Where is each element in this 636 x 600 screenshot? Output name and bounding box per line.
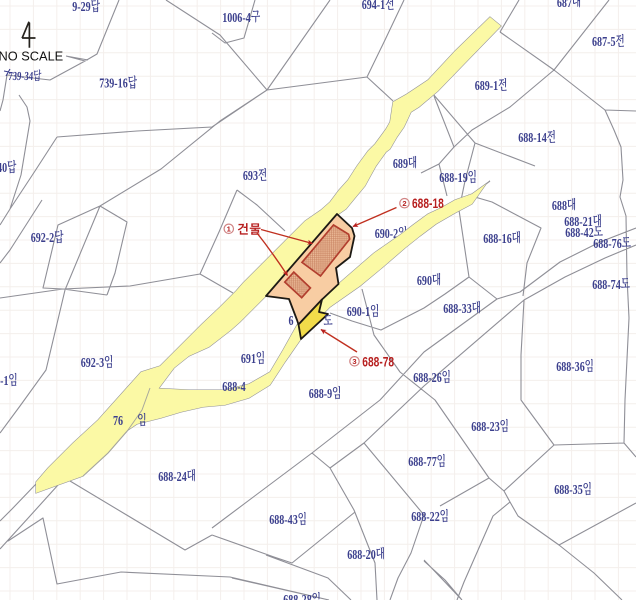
svg-text:688-9: 688-9 [309,385,332,401]
svg-text:689-1: 689-1 [475,77,498,93]
svg-text:692-2: 692-2 [31,229,54,245]
svg-text:690: 690 [417,272,432,288]
svg-text:9-29: 9-29 [72,0,90,14]
svg-text:2: 2 [402,199,406,208]
svg-text:688-4: 688-4 [222,378,245,394]
svg-text:740: 740 [0,159,7,175]
svg-text:688-19: 688-19 [439,169,468,185]
svg-text:688-74: 688-74 [592,276,621,292]
svg-text:688-22: 688-22 [411,508,440,524]
svg-text:688-42: 688-42 [565,224,594,240]
svg-text:688-23: 688-23 [471,418,500,434]
svg-text:693: 693 [243,167,258,183]
svg-text:688-20: 688-20 [347,546,376,562]
svg-text:688-16: 688-16 [483,230,512,246]
svg-text:694-1: 694-1 [362,0,385,12]
svg-text:688-26: 688-26 [413,369,442,385]
svg-text:739-34: 739-34 [8,71,34,84]
svg-text:688-36: 688-36 [556,358,585,374]
svg-text:692-3: 692-3 [81,354,104,370]
svg-text:688-33: 688-33 [443,300,472,316]
svg-text:688-78: 688-78 [362,354,394,370]
svg-text:688-77: 688-77 [408,453,437,469]
svg-text:688-76: 688-76 [593,235,622,251]
svg-text:6: 6 [289,312,294,328]
svg-text:739-16: 739-16 [99,75,128,91]
svg-text:688-35: 688-35 [554,481,583,497]
svg-text:688-43: 688-43 [269,511,298,527]
svg-text:691: 691 [241,350,256,366]
svg-text:1006-4: 1006-4 [222,9,251,25]
svg-text:688-18: 688-18 [412,195,444,211]
svg-text:690-1: 690-1 [347,303,370,319]
svg-text:NO SCALE: NO SCALE [0,49,63,64]
svg-text:687: 687 [557,0,572,10]
svg-text:76: 76 [113,412,123,428]
svg-text:689: 689 [393,155,408,171]
svg-text:692-1: 692-1 [0,372,8,388]
svg-text:688: 688 [552,197,567,213]
svg-text:3: 3 [352,357,356,366]
svg-text:687-5: 687-5 [592,33,615,49]
svg-text:688-24: 688-24 [158,468,187,484]
svg-text:688-28: 688-28 [283,591,312,600]
svg-text:688-14: 688-14 [518,129,547,145]
